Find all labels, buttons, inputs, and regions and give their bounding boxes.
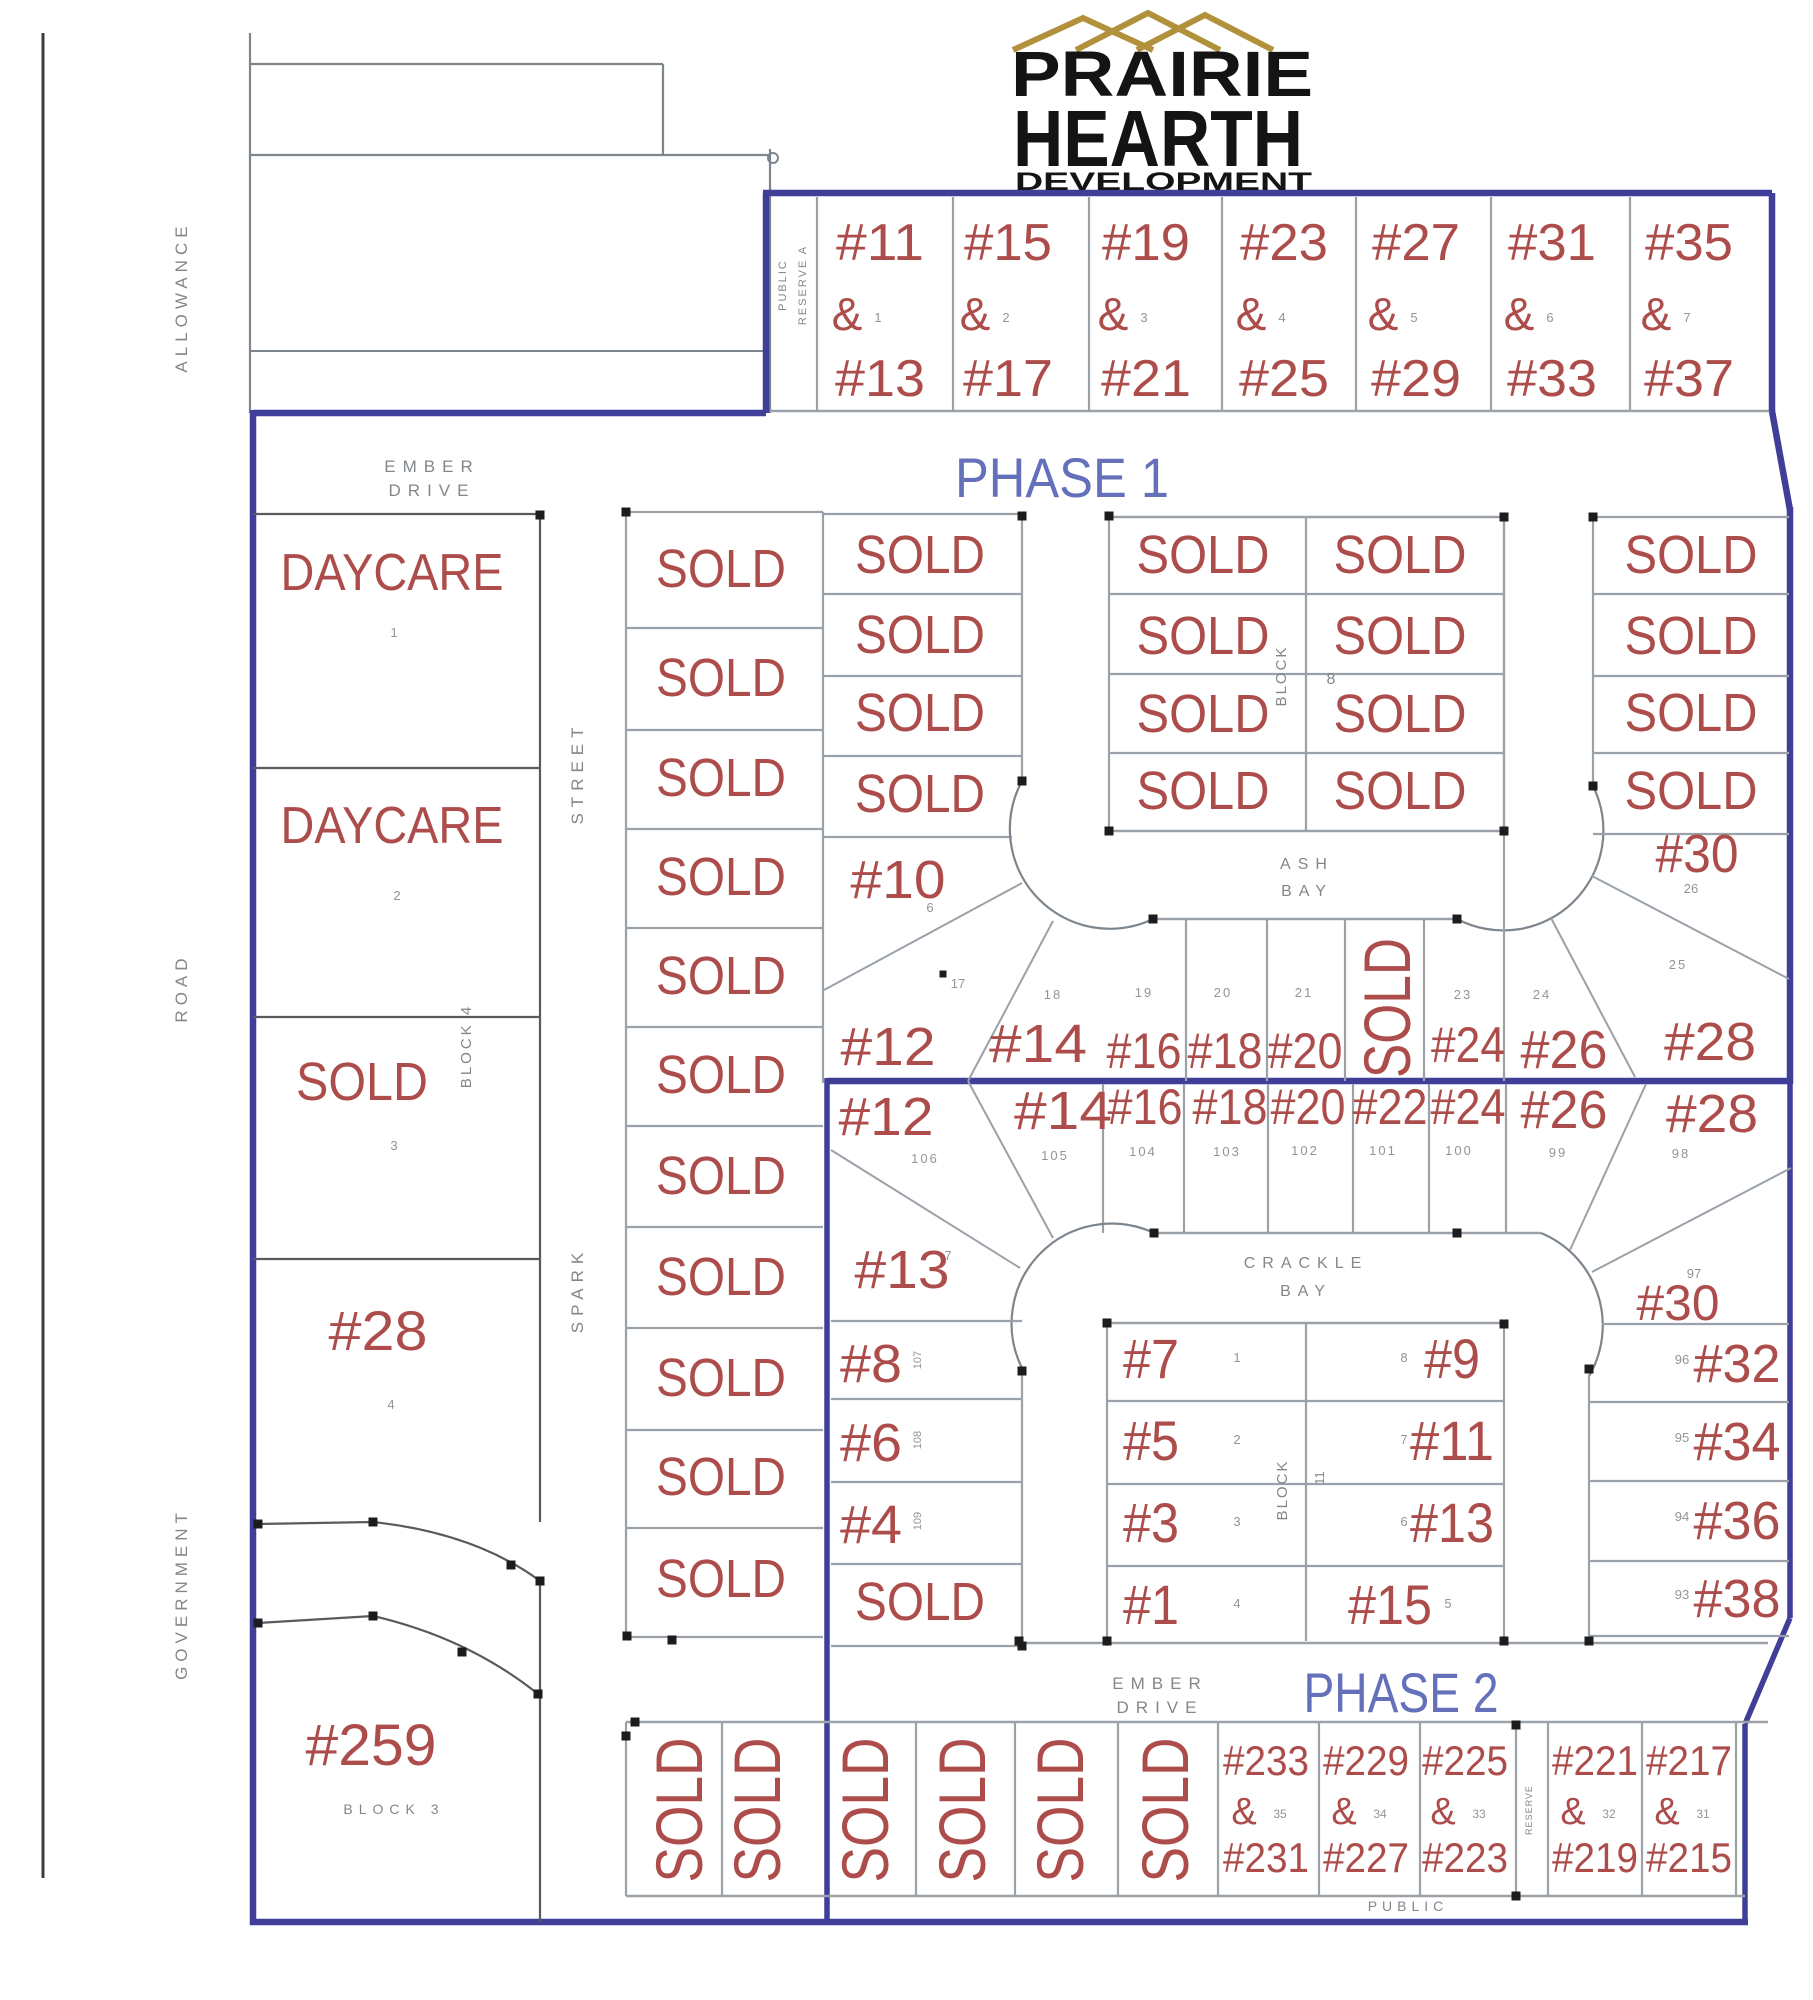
svg-text:BLOCK: BLOCK [1274,1460,1291,1521]
svg-text:#4: #4 [840,1495,902,1555]
svg-text:107: 107 [912,1351,924,1369]
svg-text:ROAD: ROAD [172,953,191,1022]
svg-text:8: 8 [1400,1350,1407,1365]
svg-text:7: 7 [1683,310,1690,325]
svg-text:BAY: BAY [1281,883,1333,900]
svg-text:SOLD: SOLD [828,1738,902,1883]
svg-text:3: 3 [390,1138,397,1153]
svg-text:SOLD: SOLD [1137,761,1270,821]
svg-text:SOLD: SOLD [656,946,786,1006]
svg-text:106: 106 [911,1151,939,1166]
svg-text:SOLD: SOLD [642,1738,716,1883]
svg-text:#3: #3 [1123,1491,1179,1554]
svg-text:SOLD: SOLD [855,764,985,824]
svg-text:#11: #11 [1410,1409,1494,1472]
svg-text:5: 5 [1410,310,1417,325]
svg-text:EMBER: EMBER [1112,1674,1207,1693]
svg-text:#28: #28 [329,1299,428,1362]
svg-text:&: & [1331,1791,1356,1833]
svg-text:SOLD: SOLD [1334,525,1467,585]
svg-text:PHASE 1: PHASE 1 [955,446,1169,509]
svg-text:2: 2 [1002,310,1009,325]
svg-text:#231: #231 [1223,1834,1309,1881]
svg-text:SOLD: SOLD [656,1146,786,1206]
svg-text:#7: #7 [1123,1327,1179,1390]
svg-text:#14: #14 [1014,1081,1112,1141]
svg-text:4: 4 [1233,1596,1240,1611]
svg-text:7: 7 [1400,1432,1407,1447]
svg-text:#28: #28 [1664,1012,1756,1072]
svg-text:#30: #30 [1637,1275,1720,1331]
svg-text:SOLD: SOLD [1137,525,1270,585]
svg-text:ALLOWANCE: ALLOWANCE [172,221,191,372]
svg-text:#20: #20 [1268,1023,1343,1079]
svg-text:#17: #17 [963,350,1053,408]
svg-text:#219: #219 [1552,1834,1638,1881]
svg-text:SOLD: SOLD [1137,606,1270,666]
svg-text:1: 1 [874,310,881,325]
svg-text:101: 101 [1369,1143,1397,1158]
svg-text:#1: #1 [1123,1573,1179,1636]
svg-text:#24: #24 [1431,1079,1506,1135]
svg-text:SOLD: SOLD [1334,761,1467,821]
svg-text:SOLD: SOLD [1128,1738,1202,1883]
svg-text:&: & [1368,288,1399,340]
svg-text:108: 108 [912,1431,924,1449]
svg-text:#217: #217 [1646,1737,1732,1784]
svg-text:#24: #24 [1431,1017,1505,1073]
svg-text:97: 97 [1687,1266,1701,1281]
svg-text:23: 23 [1454,987,1472,1002]
svg-text:PHASE 2: PHASE 2 [1304,1661,1499,1724]
svg-text:SOLD: SOLD [1350,938,1424,1078]
svg-text:#22: #22 [1353,1079,1428,1135]
svg-text:SOLD: SOLD [855,1572,985,1632]
svg-text:#30: #30 [1656,824,1739,884]
svg-text:SOLD: SOLD [1334,684,1467,744]
svg-text:#26: #26 [1521,1080,1608,1140]
svg-text:#35: #35 [1645,214,1733,272]
svg-text:#36: #36 [1694,1491,1781,1551]
svg-text:&: & [1236,288,1267,340]
svg-text:PUBLIC: PUBLIC [1368,1898,1449,1914]
svg-text:STREET: STREET [568,721,587,824]
svg-text:SOLD: SOLD [656,1348,786,1408]
svg-text:&: & [960,288,991,340]
svg-text:4: 4 [387,1397,394,1412]
svg-text:&: & [1654,1791,1679,1833]
svg-text:96: 96 [1675,1352,1689,1367]
svg-text:SOLD: SOLD [1137,684,1270,744]
svg-text:SOLD: SOLD [925,1738,999,1883]
svg-text:#28: #28 [1666,1084,1758,1144]
svg-text:CRACKLE: CRACKLE [1244,1255,1369,1272]
svg-text:#11: #11 [836,214,924,272]
svg-text:RESERVE A: RESERVE A [797,245,809,325]
svg-text:95: 95 [1675,1430,1689,1445]
svg-text:102: 102 [1291,1143,1319,1158]
svg-text:#31: #31 [1508,214,1596,272]
svg-text:8: 8 [1327,671,1336,688]
svg-text:#5: #5 [1123,1409,1179,1472]
svg-text:#15: #15 [964,214,1052,272]
svg-text:25: 25 [1669,957,1687,972]
svg-text:DAYCARE: DAYCARE [281,544,504,602]
svg-text:#18: #18 [1188,1023,1263,1079]
svg-text:33: 33 [1472,1807,1486,1821]
svg-text:SOLD: SOLD [656,648,786,708]
svg-text:98: 98 [1672,1146,1690,1161]
svg-text:34: 34 [1373,1807,1387,1821]
svg-text:SOLD: SOLD [656,1247,786,1307]
svg-text:#23: #23 [1240,214,1328,272]
svg-text:35: 35 [1273,1807,1287,1821]
svg-text:ASH: ASH [1280,856,1334,873]
svg-text:&: & [1641,288,1672,340]
svg-text:#229: #229 [1323,1737,1409,1784]
svg-text:7: 7 [944,1248,951,1263]
svg-text:&: & [1098,288,1129,340]
svg-text:109: 109 [912,1512,924,1530]
svg-text:SOLD: SOLD [855,605,985,665]
svg-text:2: 2 [1233,1432,1240,1447]
svg-text:&: & [832,288,863,340]
svg-text:#221: #221 [1552,1737,1638,1784]
svg-text:26: 26 [1684,881,1698,896]
svg-text:DEVELOPMENT: DEVELOPMENT [1015,168,1312,196]
svg-text:SOLD: SOLD [656,539,786,599]
svg-text:SOLD: SOLD [1625,761,1758,821]
svg-text:#13: #13 [835,350,925,408]
svg-text:SOLD: SOLD [656,1447,786,1507]
svg-text:#25: #25 [1239,350,1329,408]
svg-text:SOLD: SOLD [855,525,985,585]
svg-text:#16: #16 [1108,1079,1183,1135]
svg-text:SOLD: SOLD [1625,606,1758,666]
svg-text:#37: #37 [1644,350,1734,408]
svg-text:EMBER: EMBER [384,457,479,476]
svg-text:#14: #14 [989,1014,1087,1074]
svg-text:#13: #13 [855,1240,950,1300]
svg-text:21: 21 [1295,985,1313,1000]
svg-text:93: 93 [1675,1587,1689,1602]
svg-text:&: & [1560,1791,1585,1833]
svg-text:#225: #225 [1422,1737,1508,1784]
svg-text:103: 103 [1213,1144,1241,1159]
svg-text:#32: #32 [1694,1334,1781,1394]
svg-text:#259: #259 [306,1713,437,1778]
svg-text:100: 100 [1445,1143,1473,1158]
svg-text:17: 17 [951,976,965,991]
svg-text:SOLD: SOLD [656,847,786,907]
svg-text:#12: #12 [839,1087,934,1147]
svg-text:#227: #227 [1323,1834,1409,1881]
svg-text:GOVERNMENT: GOVERNMENT [172,1508,191,1680]
svg-text:PUBLIC: PUBLIC [777,259,789,311]
svg-text:BLOCK 4: BLOCK 4 [458,1004,475,1088]
svg-text:#27: #27 [1372,214,1460,272]
svg-text:3: 3 [1233,1514,1240,1529]
svg-text:#223: #223 [1422,1834,1508,1881]
svg-text:SOLD: SOLD [1023,1738,1097,1883]
svg-text:94: 94 [1675,1509,1689,1524]
svg-text:#6: #6 [840,1413,902,1473]
svg-text:6: 6 [1546,310,1553,325]
svg-text:DAYCARE: DAYCARE [281,797,504,855]
svg-text:18: 18 [1044,987,1062,1002]
svg-text:SOLD: SOLD [1625,525,1758,585]
svg-text:RESERVE: RESERVE [1524,1785,1534,1835]
svg-text:5: 5 [1444,1596,1451,1611]
svg-text:#12: #12 [841,1017,936,1077]
svg-text:2: 2 [393,888,400,903]
svg-text:4: 4 [1278,310,1285,325]
svg-text:SPARK: SPARK [568,1247,587,1333]
svg-text:105: 105 [1041,1148,1069,1163]
svg-text:99: 99 [1549,1145,1567,1160]
svg-text:#26: #26 [1521,1020,1608,1080]
svg-text:SOLD: SOLD [296,1052,428,1112]
svg-text:DRIVE: DRIVE [389,481,476,500]
svg-text:#8: #8 [840,1334,902,1394]
svg-text:&: & [1430,1791,1455,1833]
svg-text:#21: #21 [1101,350,1191,408]
svg-text:1: 1 [390,625,397,640]
svg-text:32: 32 [1602,1807,1616,1821]
svg-text:#38: #38 [1694,1569,1781,1629]
svg-text:SOLD: SOLD [656,748,786,808]
svg-text:SOLD: SOLD [720,1738,794,1883]
svg-text:#33: #33 [1507,350,1597,408]
svg-text:SOLD: SOLD [855,683,985,743]
svg-text:SOLD: SOLD [1625,683,1758,743]
svg-text:1: 1 [1233,1350,1240,1365]
svg-text:#18: #18 [1193,1079,1268,1135]
svg-text:BLOCK: BLOCK [1273,646,1290,707]
svg-text:SOLD: SOLD [1334,606,1467,666]
svg-text:DRIVE: DRIVE [1117,1698,1204,1717]
svg-text:#9: #9 [1424,1327,1480,1390]
svg-text:#233: #233 [1223,1737,1309,1784]
svg-text:SOLD: SOLD [656,1045,786,1105]
svg-text:BLOCK 3: BLOCK 3 [343,1801,444,1817]
svg-text:6: 6 [926,900,933,915]
svg-text:#34: #34 [1694,1412,1781,1472]
svg-text:20: 20 [1214,985,1232,1000]
svg-text:SOLD: SOLD [656,1549,786,1609]
svg-text:#19: #19 [1102,214,1190,272]
svg-text:24: 24 [1533,987,1551,1002]
svg-text:31: 31 [1696,1807,1710,1821]
svg-text:#13: #13 [1410,1491,1494,1554]
svg-text:#16: #16 [1107,1023,1182,1079]
svg-text:&: & [1231,1791,1256,1833]
svg-text:#20: #20 [1271,1079,1346,1135]
svg-text:#15: #15 [1348,1573,1432,1636]
svg-text:19: 19 [1135,985,1153,1000]
svg-text:BAY: BAY [1280,1283,1332,1300]
svg-text:6: 6 [1400,1514,1407,1529]
svg-text:#215: #215 [1646,1834,1732,1881]
svg-text:3: 3 [1140,310,1147,325]
svg-text:104: 104 [1129,1144,1157,1159]
svg-text:&: & [1504,288,1535,340]
svg-text:11: 11 [1312,1471,1327,1485]
svg-text:#29: #29 [1371,350,1461,408]
